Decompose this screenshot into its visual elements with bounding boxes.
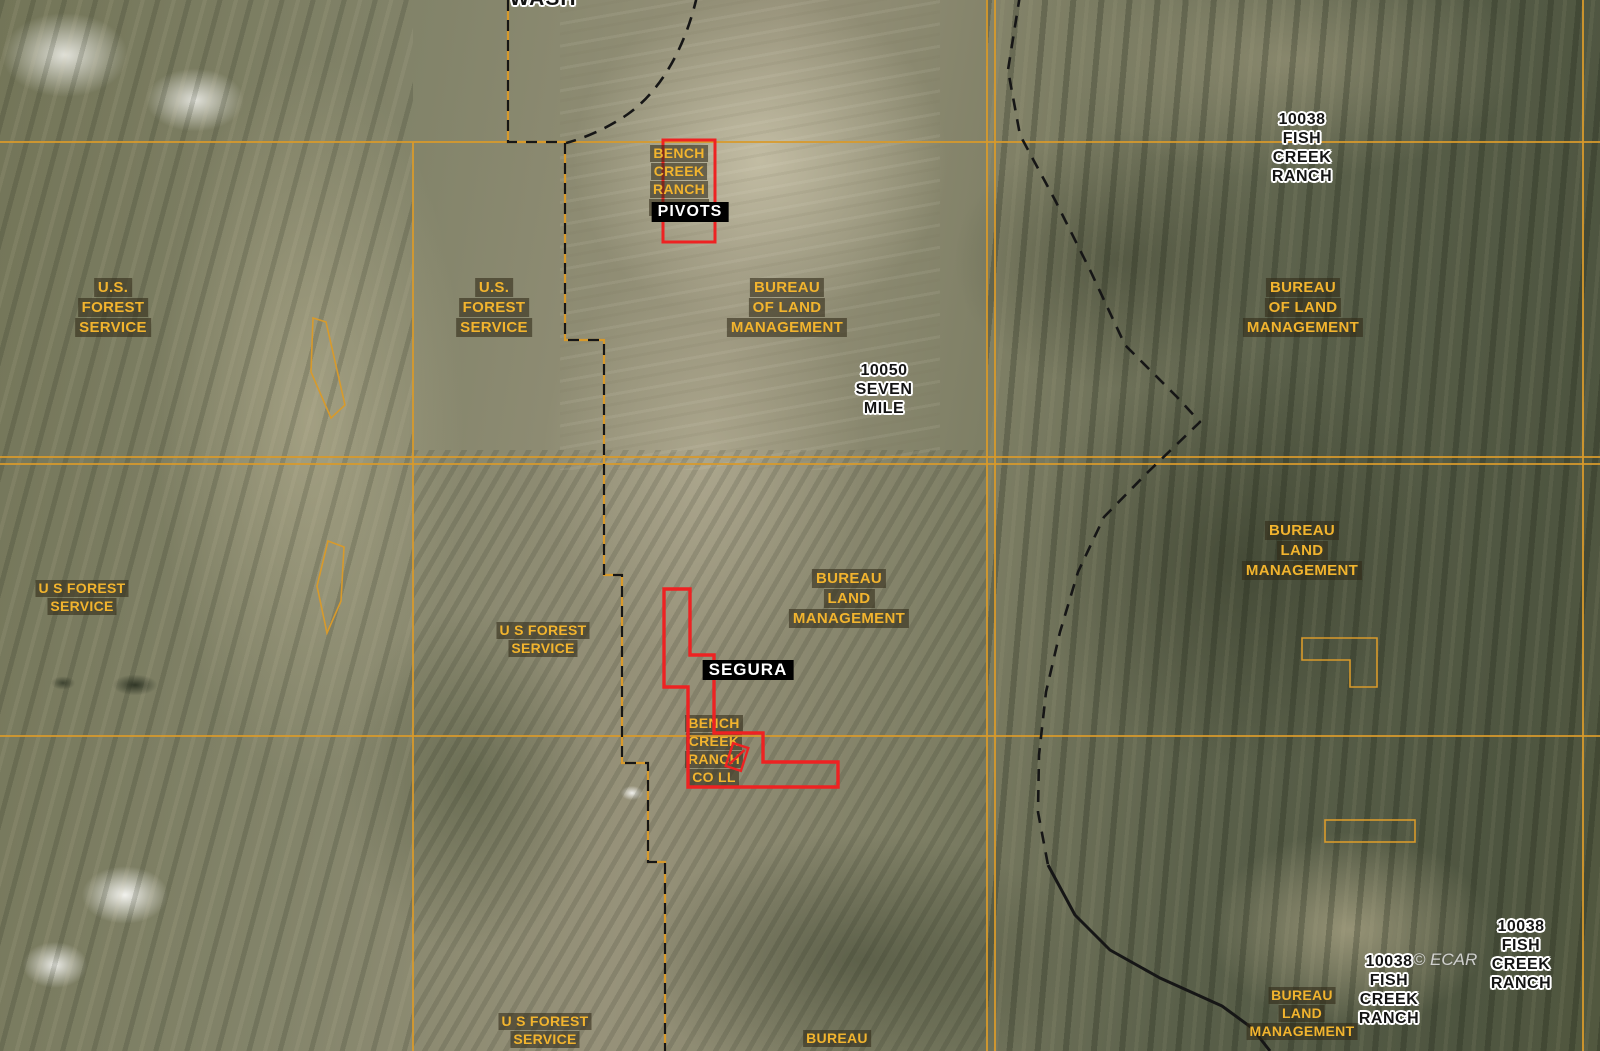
label-usfs-left-mid: U S FOREST SERVICE bbox=[35, 579, 128, 616]
label-bureau-bottom: BUREAU bbox=[803, 1029, 871, 1048]
label-blm-right-top: BUREAU OF LAND MANAGEMENT bbox=[1243, 277, 1363, 338]
label-fish-creek-bottom-right: 10038 FISH CREEK RANCH bbox=[1491, 917, 1551, 994]
small-parcel-right-lower bbox=[1325, 820, 1415, 842]
label-blm-bottom-right: BUREAU LAND MANAGEMENT bbox=[1247, 986, 1358, 1041]
forest-boundary-orange bbox=[508, 0, 665, 1051]
label-pivots: PIVOTS bbox=[652, 201, 729, 223]
label-wash: WASH bbox=[510, 0, 577, 11]
label-usfs-center-mid: U S FOREST SERVICE bbox=[496, 621, 589, 658]
label-fish-creek-bottom-left: 10038 FISH CREEK RANCH bbox=[1359, 952, 1419, 1029]
label-segura: SEGURA bbox=[703, 659, 794, 681]
label-fish-creek-top: 10038 FISH CREEK RANCH bbox=[1272, 110, 1332, 187]
wash-dashed-line bbox=[566, 0, 697, 143]
label-blm-center-top: BUREAU OF LAND MANAGEMENT bbox=[727, 277, 847, 338]
l-shaped-parcel-right bbox=[1302, 638, 1377, 687]
label-blm-center-mid: BUREAU LAND MANAGEMENT bbox=[789, 568, 909, 629]
road-line bbox=[1048, 865, 1270, 1051]
label-usfs-left-top: U.S. FOREST SERVICE bbox=[75, 277, 151, 338]
label-blm-right-mid: BUREAU LAND MANAGEMENT bbox=[1242, 520, 1362, 581]
satellite-map[interactable]: BENCH CREEK RANCH CO LL bbox=[0, 0, 1600, 1051]
forest-boundary-dashes bbox=[508, 0, 665, 1051]
ecar-watermark: © ECAR bbox=[1413, 949, 1477, 971]
label-usfs-center-top: U.S. FOREST SERVICE bbox=[456, 277, 532, 338]
label-usfs-bottom: U S FOREST SERVICE bbox=[498, 1012, 591, 1049]
red-location-marker bbox=[726, 743, 749, 771]
label-seven-mile: 10050 SEVEN MILE bbox=[856, 361, 913, 419]
sliver-parcel-lower bbox=[317, 541, 344, 633]
sliver-parcel-upper bbox=[311, 318, 345, 418]
